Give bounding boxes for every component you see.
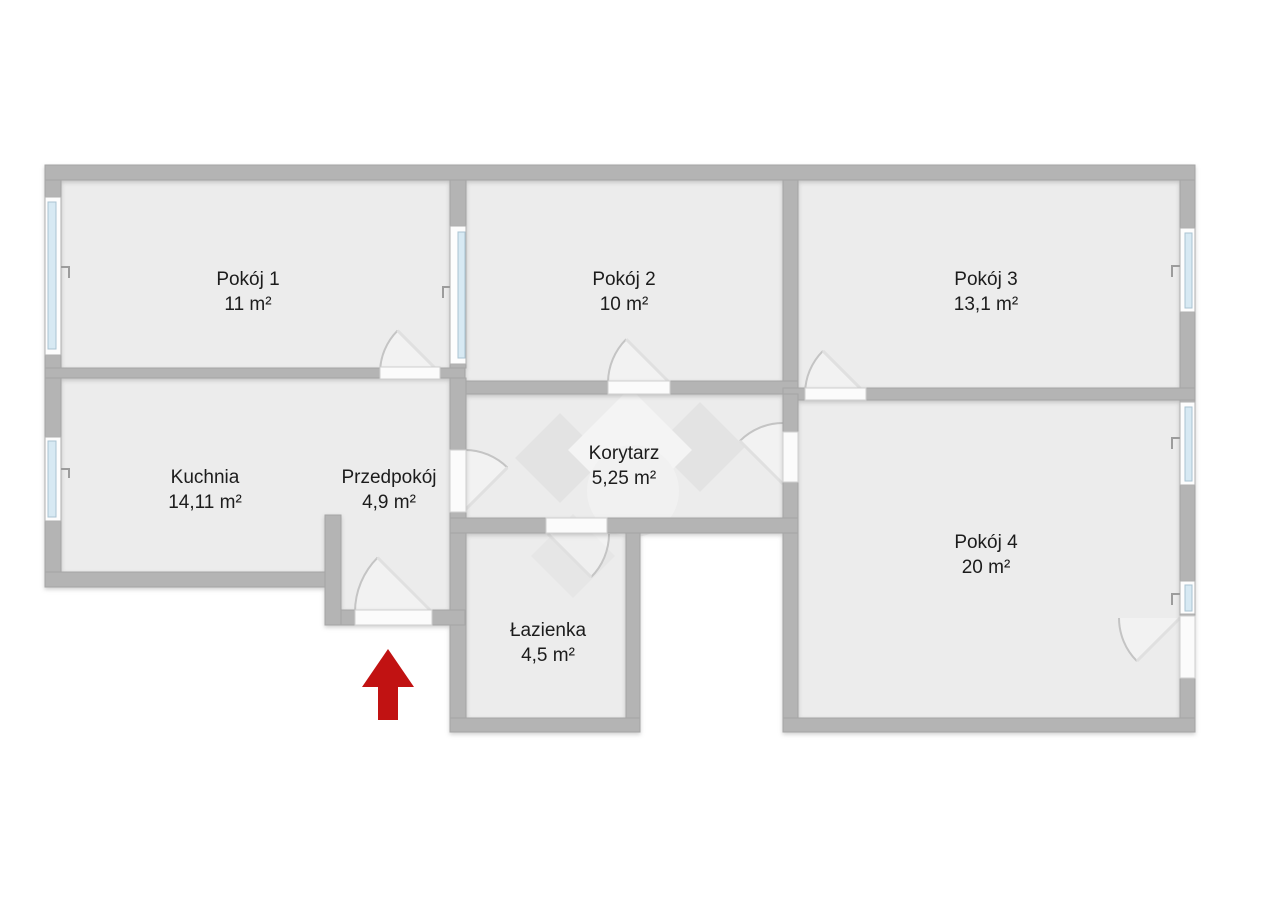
wall-pokoj2-pokoj3	[783, 180, 798, 381]
opening-pokoj-1	[380, 367, 440, 379]
window-pokoj-4-lower	[1180, 581, 1195, 614]
window-pokoj-1	[45, 197, 61, 355]
room-label-pokoj-1: Pokój 1 11 m²	[216, 267, 279, 317]
entrance-arrow	[362, 649, 414, 720]
room-area: 11 m²	[216, 292, 279, 317]
room-label-korytarz: Korytarz 5,25 m²	[589, 441, 660, 491]
wall-lazienka-right	[626, 533, 640, 732]
room-name: Pokój 4	[954, 532, 1017, 553]
room-area: 13,1 m²	[954, 292, 1018, 317]
room-name: Pokój 1	[216, 269, 279, 290]
room-name: Pokój 2	[592, 269, 655, 290]
wall-entrance-stub	[325, 515, 341, 625]
window-pokoj-3	[1180, 228, 1195, 312]
wall-lazienka-bottom	[450, 718, 640, 732]
room-label-przedpokoj: Przedpokój 4,9 m²	[341, 465, 436, 515]
room-label-pokoj-3: Pokój 3 13,1 m²	[954, 267, 1018, 317]
wall-pokoj4-bottom	[783, 718, 1195, 732]
window-pokoj-2	[450, 226, 466, 364]
wall-przedpokoj-korytarz	[450, 378, 466, 732]
room-name: Korytarz	[589, 443, 660, 464]
room-label-pokoj-4: Pokój 4 20 m²	[954, 530, 1017, 580]
room-name: Pokój 3	[954, 269, 1017, 290]
room-area: 20 m²	[954, 555, 1017, 580]
wall-korytarz-bottom	[450, 518, 798, 533]
room-label-kuchnia: Kuchnia 14,11 m²	[168, 465, 242, 515]
room-label-lazienka: Łazienka 4,5 m²	[510, 618, 586, 668]
opening-pokoj-4	[783, 432, 798, 482]
room-name: Kuchnia	[171, 467, 240, 488]
room-area: 10 m²	[592, 292, 655, 317]
opening-entrance	[355, 610, 432, 625]
wall-exterior-top	[45, 165, 1195, 180]
room-name: Przedpokój	[341, 467, 436, 488]
window-kuchnia	[45, 437, 61, 521]
wall-kuchnia-bottom	[45, 572, 341, 587]
room-area: 5,25 m²	[589, 466, 660, 491]
opening-balcony	[1180, 616, 1195, 678]
room-area: 14,11 m²	[168, 490, 242, 515]
floor-plan-page: Pokój 1 11 m² Pokój 2 10 m² Pokój 3 13,1…	[0, 0, 1269, 900]
opening-lazienka	[546, 518, 607, 533]
window-pokoj-4-upper	[1180, 402, 1195, 485]
opening-pokoj-2	[608, 381, 670, 394]
room-area: 4,5 m²	[510, 643, 586, 668]
opening-pokoj-3	[805, 388, 866, 400]
room-area: 4,9 m²	[341, 490, 436, 515]
room-name: Łazienka	[510, 620, 586, 641]
opening-korytarz	[450, 450, 466, 512]
room-label-pokoj-2: Pokój 2 10 m²	[592, 267, 655, 317]
